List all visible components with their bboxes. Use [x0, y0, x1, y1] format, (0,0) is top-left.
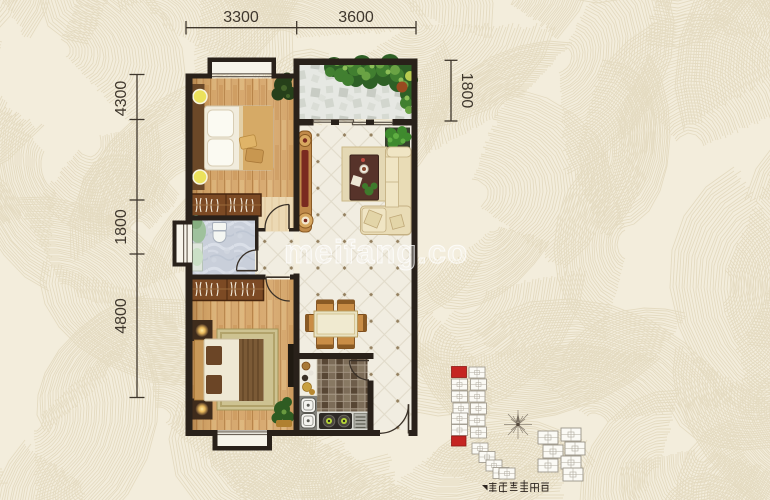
svg-text:3600: 3600 [338, 9, 374, 26]
svg-text:4300: 4300 [113, 81, 130, 117]
svg-text:4800: 4800 [113, 298, 130, 334]
svg-text:1800: 1800 [113, 209, 130, 245]
svg-text:meifang.co: meifang.co [284, 233, 468, 270]
svg-text:1800: 1800 [458, 73, 475, 109]
svg-text:3300: 3300 [223, 9, 259, 26]
